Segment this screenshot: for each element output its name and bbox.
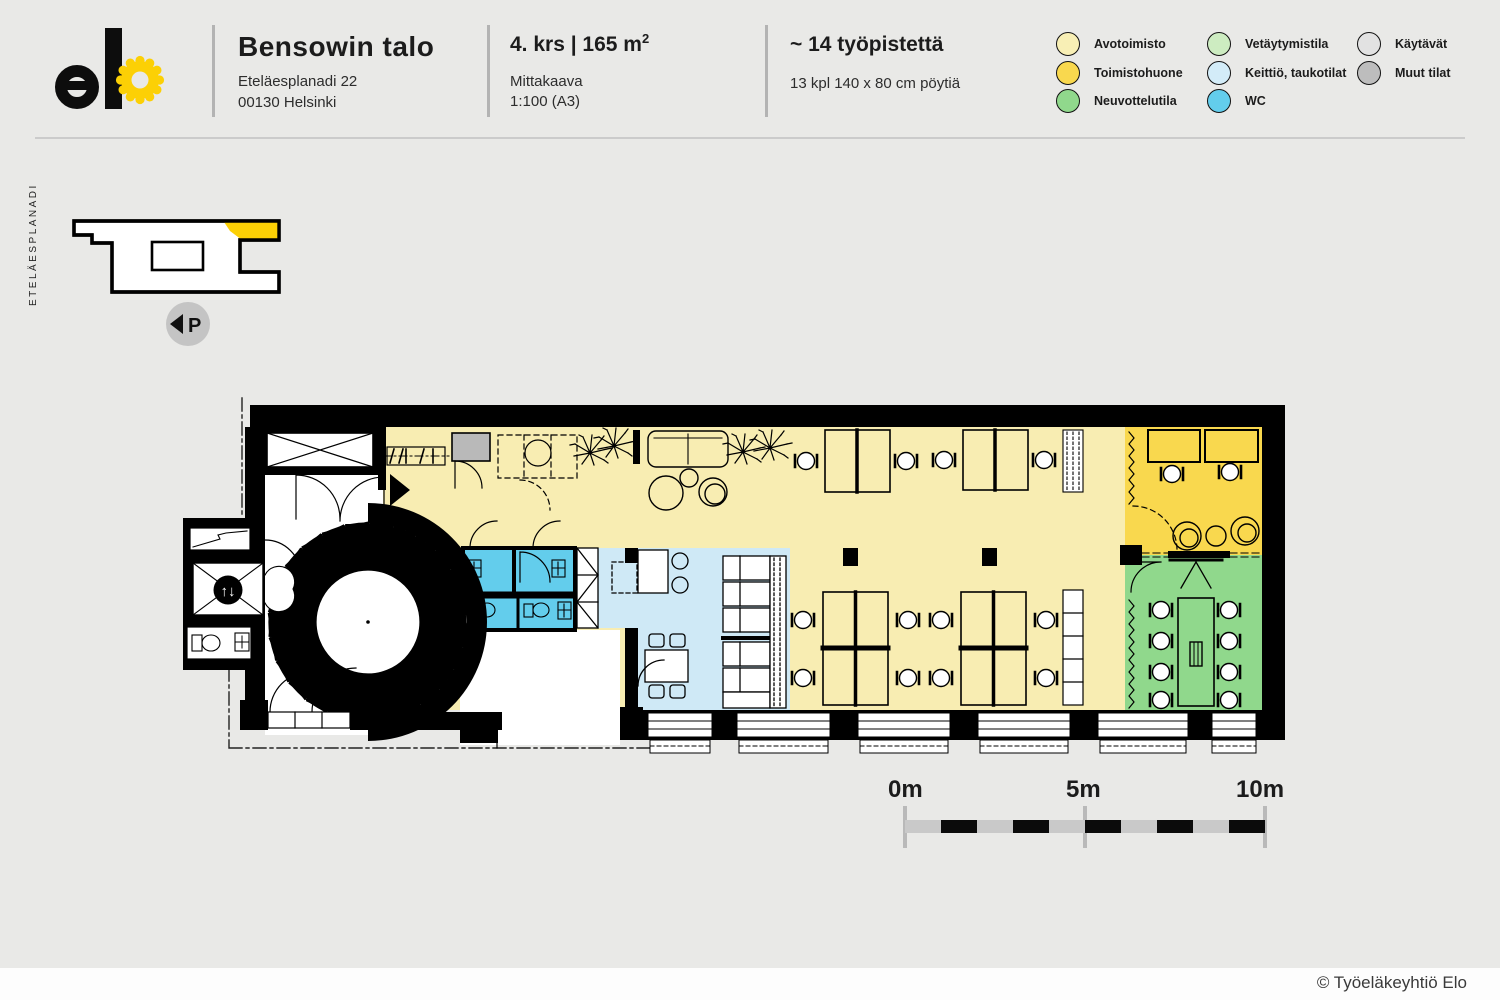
footer-strip xyxy=(0,968,1500,1000)
copyright: © Työeläkeyhtiö Elo xyxy=(1317,973,1467,993)
building-letter: B xyxy=(315,531,338,567)
drawing-canvas: P xyxy=(0,0,1500,1000)
kitchen-table xyxy=(645,650,688,682)
scale-label-10: 10m xyxy=(1236,776,1284,804)
scale-label-5: 5m xyxy=(1066,776,1101,804)
banquette-seating xyxy=(723,556,770,708)
locator-courtyard xyxy=(152,242,203,270)
elevator-icon: ↑↓ xyxy=(214,576,243,605)
shelf-strip xyxy=(1063,590,1083,705)
zone-office-room xyxy=(1125,427,1262,555)
plant-hedge xyxy=(770,556,786,708)
elevator-door-arc xyxy=(265,566,295,611)
north-arrow-icon: P xyxy=(166,302,210,346)
gray-shaft-box xyxy=(452,433,490,461)
plant-strip-top xyxy=(1063,430,1083,492)
scale-bar-segments xyxy=(905,820,1265,833)
svg-text:↑↓: ↑↓ xyxy=(221,583,236,600)
locator-map: P xyxy=(74,221,279,346)
zone-meeting-room xyxy=(1125,555,1262,710)
svg-text:P: P xyxy=(188,315,201,337)
scale-label-0: 0m xyxy=(888,776,923,804)
floor-plan: ↑↓ B xyxy=(183,398,1285,753)
annex-wc xyxy=(187,627,251,659)
